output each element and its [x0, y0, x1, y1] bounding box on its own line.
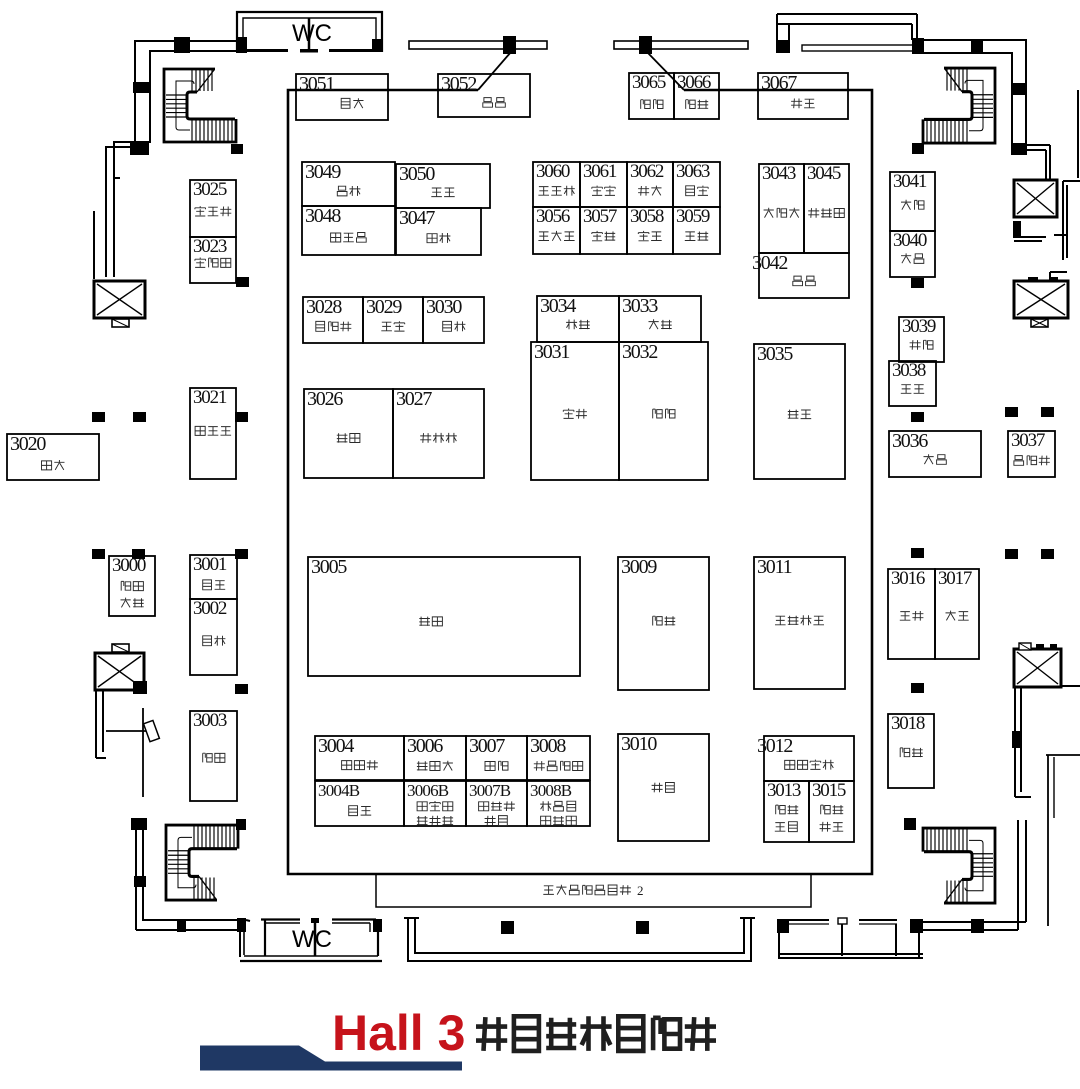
svg-text:3059: 3059	[676, 206, 710, 227]
svg-text:3030: 3030	[426, 296, 462, 318]
svg-text:3026: 3026	[307, 388, 343, 410]
svg-text:3023: 3023	[193, 236, 227, 257]
svg-text:3035: 3035	[757, 343, 793, 365]
svg-text:3016: 3016	[891, 568, 925, 589]
svg-text:3058: 3058	[630, 206, 664, 227]
svg-text:3008B: 3008B	[530, 781, 572, 800]
svg-text:3061: 3061	[583, 161, 617, 182]
svg-text:3031: 3031	[534, 341, 569, 363]
svg-text:3013: 3013	[767, 780, 801, 801]
svg-text:3065: 3065	[632, 72, 666, 93]
svg-text:3011: 3011	[757, 556, 792, 578]
svg-text:3025: 3025	[193, 179, 227, 200]
svg-text:3004B: 3004B	[318, 781, 360, 800]
svg-text:WC: WC	[292, 926, 332, 953]
svg-text:3039: 3039	[902, 316, 936, 337]
svg-text:3063: 3063	[676, 161, 710, 182]
svg-text:3048: 3048	[305, 205, 341, 227]
svg-text:3006B: 3006B	[407, 781, 449, 800]
svg-text:3028: 3028	[306, 296, 342, 318]
svg-text:3062: 3062	[630, 161, 664, 182]
svg-text:3004: 3004	[318, 735, 354, 757]
svg-text:3005: 3005	[311, 556, 347, 578]
svg-text:3052: 3052	[441, 73, 476, 95]
svg-text:3010: 3010	[621, 733, 657, 755]
svg-text:3008: 3008	[530, 735, 566, 757]
svg-text:3034: 3034	[540, 295, 576, 317]
svg-text:3049: 3049	[305, 161, 341, 183]
svg-text:3007: 3007	[469, 735, 505, 757]
svg-text:3018: 3018	[891, 713, 925, 734]
svg-text:3047: 3047	[399, 207, 435, 229]
svg-text:3040: 3040	[893, 230, 927, 251]
svg-text:3037: 3037	[1011, 430, 1045, 451]
svg-text:Hall 3: Hall 3	[332, 1005, 465, 1061]
svg-text:3029: 3029	[366, 296, 402, 318]
svg-text:3015: 3015	[812, 780, 846, 801]
svg-text:3038: 3038	[892, 360, 926, 381]
svg-text:2: 2	[637, 883, 644, 898]
svg-text:3032: 3032	[622, 341, 657, 363]
svg-text:3041: 3041	[893, 171, 927, 192]
svg-text:3001: 3001	[193, 554, 227, 575]
svg-text:3057: 3057	[583, 206, 617, 227]
svg-text:3036: 3036	[892, 430, 928, 452]
svg-text:3003: 3003	[193, 710, 227, 731]
svg-text:3027: 3027	[396, 388, 432, 410]
svg-text:3000: 3000	[112, 555, 146, 576]
svg-text:3012: 3012	[757, 735, 792, 757]
svg-text:3006: 3006	[407, 735, 443, 757]
svg-text:3007B: 3007B	[469, 781, 511, 800]
svg-text:WC: WC	[292, 20, 332, 47]
svg-text:3033: 3033	[622, 295, 658, 317]
svg-text:3002: 3002	[193, 598, 227, 619]
svg-text:3050: 3050	[399, 163, 435, 185]
svg-text:3060: 3060	[536, 161, 570, 182]
svg-text:3051: 3051	[299, 73, 334, 95]
svg-text:3042: 3042	[752, 252, 787, 274]
svg-text:3009: 3009	[621, 556, 657, 578]
svg-text:3020: 3020	[10, 433, 46, 455]
svg-text:3045: 3045	[807, 163, 841, 184]
svg-text:3067: 3067	[761, 72, 797, 94]
svg-text:3056: 3056	[536, 206, 570, 227]
svg-text:3043: 3043	[762, 163, 796, 184]
svg-text:3066: 3066	[677, 72, 711, 93]
svg-text:3017: 3017	[938, 568, 972, 589]
svg-text:3021: 3021	[193, 387, 227, 408]
